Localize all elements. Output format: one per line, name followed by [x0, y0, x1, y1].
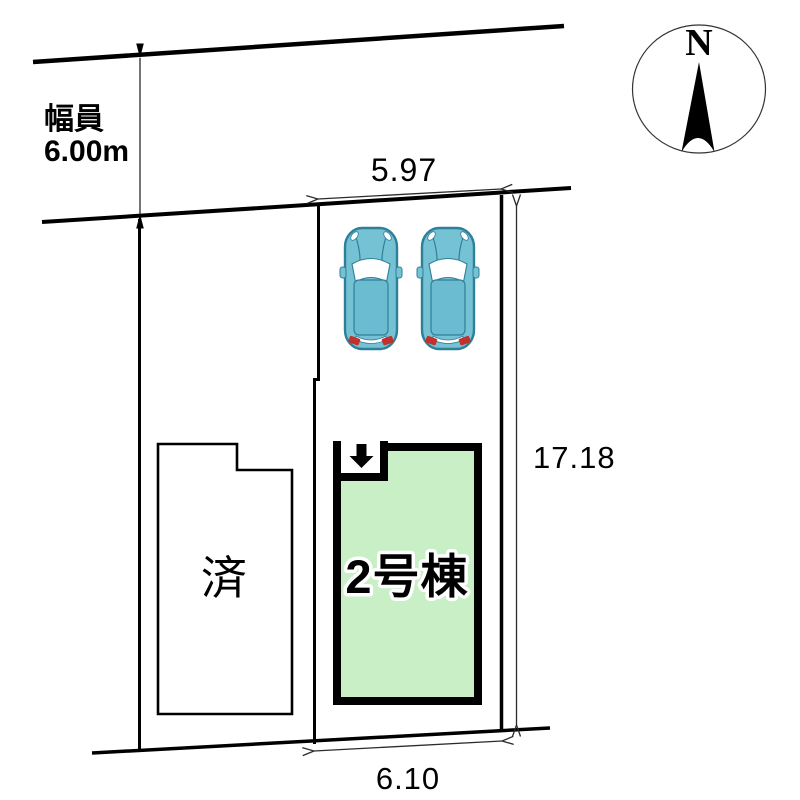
- building-unit2-label: 2号棟: [345, 550, 468, 603]
- road-width-label: 幅員: [44, 103, 104, 136]
- parcel-divider-boundary: [315, 206, 319, 744]
- dimension-frontage-top-value: 5.97: [371, 152, 437, 188]
- north-label: N: [685, 22, 712, 64]
- dimension-depth-right-value: 17.18: [533, 440, 616, 475]
- building-sold-label: 済: [201, 552, 249, 604]
- site-plan: 幅員 6.00m N 済 2号棟 5.97 17.18 6.10: [0, 0, 800, 800]
- car-icon: [340, 228, 402, 349]
- road-south-edge-line: [42, 188, 571, 222]
- road-north-edge-line: [33, 26, 564, 62]
- dimension-frontage-bottom-line: [314, 741, 502, 751]
- dimension-frontage-bottom-value: 6.10: [376, 761, 440, 796]
- car-icon: [417, 228, 479, 349]
- entrance-down-arrow-icon: [350, 444, 374, 468]
- site-plan-canvas: 幅員 6.00m N 済 2号棟 5.97 17.18 6.10: [0, 0, 800, 800]
- road-width-value: 6.00m: [44, 135, 129, 168]
- north-compass: N: [633, 22, 766, 153]
- south-road-line: [92, 728, 550, 753]
